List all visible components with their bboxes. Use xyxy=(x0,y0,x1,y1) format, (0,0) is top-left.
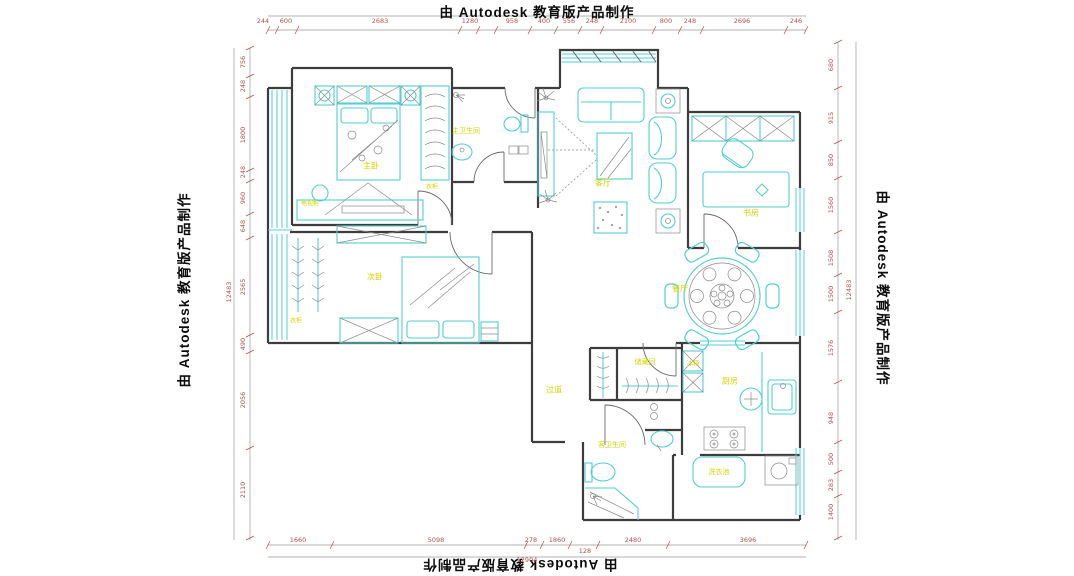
dimension-label: 958 xyxy=(506,17,518,25)
study-details xyxy=(692,116,794,141)
room-label-fridge: 冰箱 xyxy=(687,359,699,368)
dimension-label: 600 xyxy=(280,17,292,25)
dimension-label: 2696 xyxy=(734,17,751,25)
dimension-label: 850 xyxy=(827,154,835,166)
speaker-top xyxy=(661,94,675,108)
dimension-label: 128 xyxy=(579,547,591,555)
dimension-label: 1400 xyxy=(827,504,835,521)
dimension-total-right: 12483 xyxy=(845,280,853,301)
dining-window-right xyxy=(796,250,804,336)
dimension-label: 248 xyxy=(239,166,247,178)
watermark-right: 由 Autodesk 教育版产品制作 xyxy=(874,190,894,385)
dimension-label: 246 xyxy=(790,17,802,25)
dimension-label: 248 xyxy=(684,17,696,25)
dimension-label: 244 xyxy=(257,17,269,25)
dimension-label: 800 xyxy=(660,17,672,25)
room-label-laundry-sink: 洗衣池 xyxy=(709,467,730,477)
room-label-living-room: 客厅 xyxy=(595,178,611,189)
furniture-master-bedroom xyxy=(297,86,449,220)
stove xyxy=(704,427,745,450)
storage-details xyxy=(597,356,668,393)
dimension-label: 248 xyxy=(586,17,598,25)
furniture-master-bath xyxy=(452,115,528,160)
desk-diamond xyxy=(756,184,768,196)
plant-top xyxy=(537,88,555,101)
room-label-kitchen: 厨房 xyxy=(722,376,738,387)
dimension-label: 2565 xyxy=(239,279,247,296)
dimension-label: 2100 xyxy=(620,17,637,25)
dimension-label: 278 xyxy=(525,536,537,544)
dimension-label: 248 xyxy=(239,80,247,92)
dimension-label: 756 xyxy=(239,56,247,68)
dimension-label: 500 xyxy=(827,453,835,465)
dimension-total-bottom: 12904 xyxy=(517,556,538,564)
dimension-label: 1860 xyxy=(549,536,566,544)
room-label-wardrobe-master: 衣柜 xyxy=(426,182,438,191)
tv-master xyxy=(342,206,404,213)
washing-machine xyxy=(765,456,798,485)
room-label-tv-cabinet: 电视柜 xyxy=(301,199,319,208)
room-label-master-bedroom: 主卧 xyxy=(363,161,379,172)
floor-plan-svg xyxy=(0,0,1074,576)
study-window-right xyxy=(796,188,804,232)
speaker-bottom xyxy=(661,214,675,228)
sink-guest xyxy=(651,431,673,447)
master-bath-door xyxy=(474,152,504,182)
watermark-left: 由 Autodesk 教育版产品制作 xyxy=(173,192,193,387)
dimension-label: 2110 xyxy=(239,482,247,499)
furniture-kitchen xyxy=(683,351,796,452)
desk xyxy=(703,172,789,207)
hanger-rods xyxy=(298,238,318,312)
laundry-window-right xyxy=(796,448,804,515)
dimension-label: 680 xyxy=(827,59,835,71)
dimension-label: 1560 xyxy=(827,197,835,214)
balcony-window-left-upper xyxy=(272,90,287,228)
armchair-1 xyxy=(649,117,676,159)
dimension-label: 1280 xyxy=(462,17,479,25)
dimension-label: 948 xyxy=(827,412,835,424)
toilet-guest xyxy=(591,463,615,481)
dimension-label: 2056 xyxy=(239,392,247,409)
dimension-label: 556 xyxy=(563,17,575,25)
dimension-total-left: 12483 xyxy=(225,282,233,303)
dimension-label: 1800 xyxy=(239,127,247,144)
living-room-details xyxy=(537,88,680,233)
dimension-label: 2480 xyxy=(625,536,642,544)
dimension-label: 648 xyxy=(239,220,247,232)
room-label-second-bedroom: 次卧 xyxy=(367,272,383,283)
tv-cabinet-living xyxy=(538,112,554,196)
furniture-dining xyxy=(665,241,779,352)
laundry-details xyxy=(765,456,798,485)
room-label-guest-bath: 客卫生间 xyxy=(598,440,626,450)
toilet-master xyxy=(504,117,520,131)
cad-floor-plan: 由 Autodesk 教育版产品制作 由 Autodesk 教育版产品制作 由 … xyxy=(0,0,1074,576)
bed-second xyxy=(402,257,479,343)
room-label-storage-room: 储藏间 xyxy=(635,357,656,367)
dining-details xyxy=(689,263,755,329)
dimension-label: 2683 xyxy=(372,17,389,25)
dimension-label: 1500 xyxy=(827,286,835,303)
dimension-label: 400 xyxy=(538,17,550,25)
dimension-label: 1576 xyxy=(827,340,835,357)
dimension-label: 1508 xyxy=(827,250,835,267)
furniture-living-room xyxy=(538,88,676,233)
centerpiece xyxy=(710,284,734,308)
dimension-label: 1660 xyxy=(290,536,307,544)
room-label-wardrobe-second: 衣柜 xyxy=(290,316,302,325)
guest-bath-details xyxy=(588,404,661,519)
balcony-window-left-lower xyxy=(272,234,287,340)
dining-table xyxy=(684,258,760,334)
dimension-label: 3696 xyxy=(740,536,757,544)
dimension-label: 490 xyxy=(239,338,247,350)
bay-window-hatch xyxy=(572,50,656,62)
entry-door xyxy=(505,88,535,118)
room-label-hallway: 过道 xyxy=(546,385,562,396)
room-label-master-bath: 主卫生间 xyxy=(452,126,480,136)
kitchen-sliding-door xyxy=(700,341,745,345)
study-door xyxy=(704,214,738,248)
furniture-second-bedroom xyxy=(298,226,498,343)
dimension-label: 915 xyxy=(827,112,835,124)
room-label-dining-room: 餐厅 xyxy=(672,284,688,295)
room-label-study: 书房 xyxy=(743,208,759,219)
dimension-label: 5098 xyxy=(428,536,445,544)
dimension-label: 283 xyxy=(827,479,835,491)
nightstand-second xyxy=(481,322,498,341)
armchair-2 xyxy=(649,163,676,203)
dimension-label: 960 xyxy=(239,192,247,204)
guest-bath-door xyxy=(605,405,645,445)
second-bedroom-details xyxy=(292,226,498,343)
second-bedroom-door xyxy=(450,232,492,274)
